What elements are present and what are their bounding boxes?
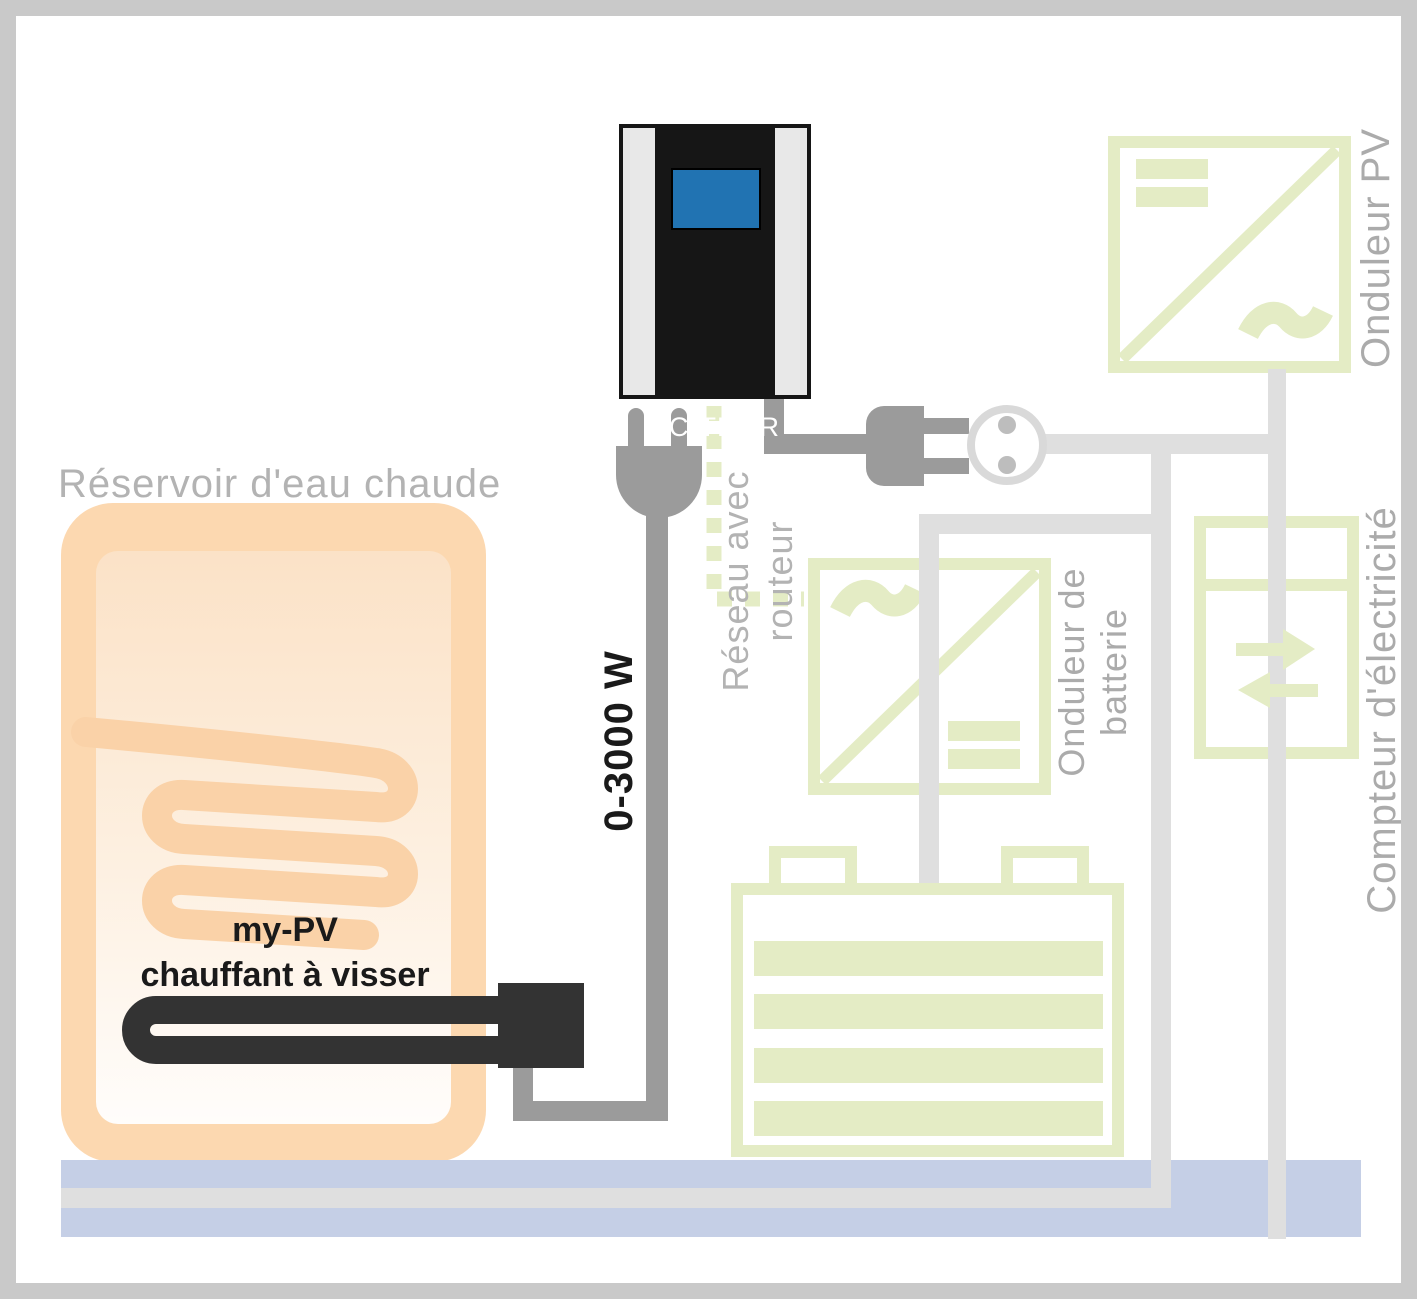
heater-label-line1: my-PV [115,908,455,953]
meter-arrow-left-shaft [1270,684,1318,697]
pv-inverter-label: Onduleur PV [1353,138,1399,368]
network-router-label-line1: Réseau avec [714,461,758,701]
heater-terminal-block [498,983,584,1068]
acthor-device-label: AC·THOR [619,412,811,443]
cable-power-label: 0-3000 W [597,641,641,841]
acthor-screen [671,168,761,230]
electricity-meter-label: Compteur d'électricité [1359,500,1405,920]
network-router-label: Réseau avec routeur [714,461,802,701]
network-router-label-line2: routeur [758,461,802,701]
meter-arrow-left-head [1238,672,1270,708]
acthor-device-stripe [775,128,807,395]
acthor-device-stripe [623,128,655,395]
heater-cable-horizontal [513,1101,666,1121]
heater-label-line2: chauffant à visser [115,953,455,998]
grid-plug-body [866,406,924,486]
grid-plug-prong [921,418,969,434]
meter-arrow-right-head [1283,629,1315,670]
wall-socket-hole [998,416,1016,434]
heater-label: my-PV chauffant à visser [115,908,455,998]
grid-plug-prong [921,458,969,474]
battery-inverter-label-line1: Onduleur de [1051,562,1093,782]
tank-title-label: Réservoir d'eau chaude [58,462,501,507]
battery-inverter-label: Onduleur de batterie [1051,562,1135,782]
meter-arrow-right-shaft [1236,643,1283,656]
heater-power-cable [646,506,668,1121]
heater-cable-riser [513,1066,533,1121]
acthor-device: AC·THOR [619,124,811,399]
diagram-canvas: AC·THOR Réservoir d'eau chaude my-PV cha… [0,0,1417,1299]
battery-inverter-label-line2: batterie [1093,562,1135,782]
wall-socket-hole [998,456,1016,474]
